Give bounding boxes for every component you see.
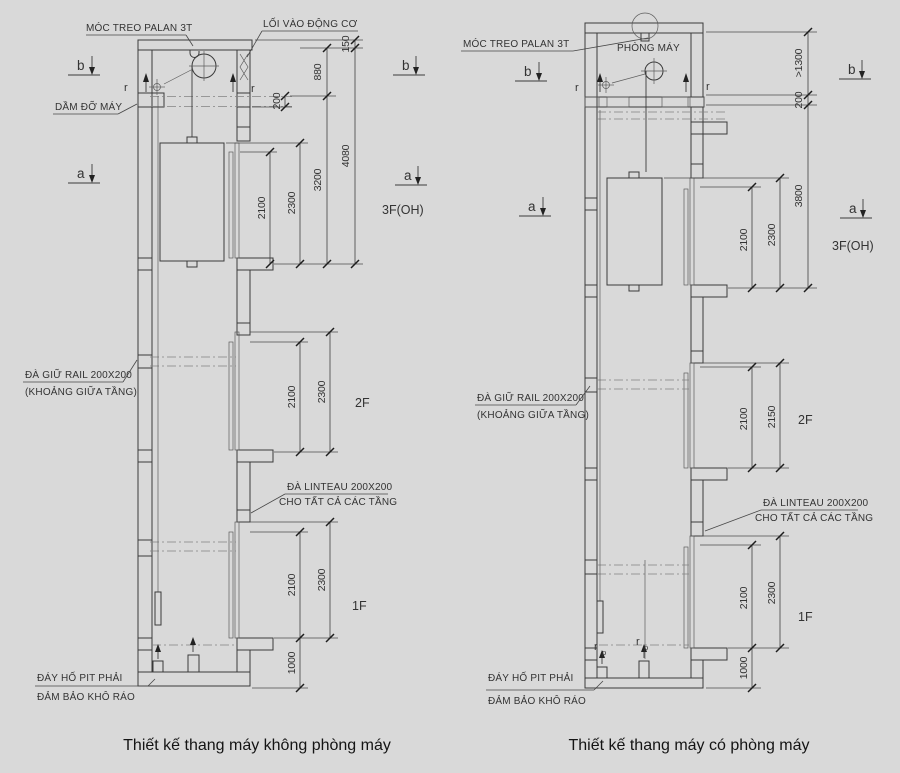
left-wall-right-top	[237, 50, 250, 93]
rail-top-mark-right: r	[251, 83, 255, 95]
right-floor-slab-3f	[691, 285, 727, 297]
motor-access-ladder	[240, 54, 248, 80]
rail-label-1: ĐÀ GIỮ RAIL 200X200	[25, 368, 132, 381]
dim-1f-2100: 2100	[738, 586, 750, 609]
left-cab	[160, 137, 224, 267]
buffer	[597, 667, 607, 678]
left-roof-slab	[138, 40, 252, 50]
rail-label-2: (KHOẢNG GIỮA TẦNG)	[477, 408, 589, 421]
elevator-drawing-svg: r r	[0, 0, 900, 773]
pit-label-2: ĐẢM BẢO KHÔ RÁO	[37, 690, 135, 703]
right-wall-right-top	[691, 33, 703, 97]
guide-rail	[155, 592, 161, 625]
dim-4080: 4080	[340, 144, 352, 167]
hoist-hook-icon	[190, 50, 199, 58]
section-b-right: b	[848, 62, 856, 77]
section-b-right: b	[402, 58, 410, 73]
pit-label-1: ĐÁY HỐ PIT PHẢI	[488, 670, 573, 684]
right-shaft-structure	[585, 13, 727, 688]
section-a-right: a	[404, 168, 412, 183]
dim-1000: 1000	[738, 656, 750, 679]
right-machine-assembly: r r	[575, 58, 710, 172]
right-caption: Thiết kế thang máy có phòng máy	[568, 737, 809, 754]
linteau-label-1: ĐÀ LINTEAU 200X200	[287, 480, 393, 493]
rail-top-mark-right: r	[706, 81, 710, 93]
rail-top-mark-left: r	[124, 82, 128, 94]
linteau-label-2: CHO TẤT CẢ CÁC TẦNG	[755, 511, 873, 524]
left-callouts: MÓC TREO PALAN 3T LỐI VÀO ĐỘNG CƠ DẦM ĐỠ…	[23, 16, 397, 703]
dim-2f-2300: 2300	[316, 380, 328, 403]
buffer-mark-r2: r	[636, 636, 640, 648]
right-pit-equipment: r p r p	[594, 110, 649, 678]
guide-rail	[597, 601, 603, 633]
right-pit-floor	[585, 678, 703, 688]
section-a-left: a	[77, 166, 85, 181]
hoist-hook-icon	[641, 33, 649, 41]
left-section-markers: b a b a	[68, 56, 427, 185]
cab-body	[607, 178, 662, 285]
buffer-mark-p2: p	[644, 643, 648, 652]
section-a-left: a	[528, 199, 536, 214]
section-b-left: b	[524, 64, 532, 79]
dim-2100-oh: 2100	[256, 196, 268, 219]
right-floor-slab-1f	[691, 648, 727, 660]
floor-1f-label: 1F	[798, 610, 813, 624]
dim-1300: >1300	[793, 48, 805, 77]
floor-2f-label: 2F	[798, 413, 813, 427]
pit-label-2: ĐẢM BẢO KHÔ RÁO	[488, 694, 586, 707]
left-wall-left	[138, 50, 152, 672]
floor-1f-label: 1F	[352, 599, 367, 613]
rail-label-1: ĐÀ GIỮ RAIL 200X200	[477, 391, 584, 404]
left-caption: Thiết kế thang máy không phòng máy	[123, 737, 391, 754]
buffer-mark-p1: p	[602, 648, 606, 657]
left-floor-labels: 3F(OH) 2F 1F	[352, 203, 424, 613]
right-cab	[607, 172, 662, 291]
rail-top-mark-left: r	[575, 82, 579, 94]
dim-880: 880	[312, 63, 324, 80]
pit-label-1: ĐÁY HỐ PIT PHẢI	[37, 670, 122, 684]
cab-body	[160, 143, 224, 261]
dim-1f-2100: 2100	[286, 573, 298, 596]
right-drawing: r r r p r p	[461, 13, 874, 754]
dim-200: 200	[793, 91, 805, 108]
rail-label-2: (KHOẢNG GIỮA TẦNG)	[25, 385, 137, 398]
hoist-hook-ring	[632, 13, 658, 39]
linteau-label-2: CHO TẤT CẢ CÁC TẦNG	[279, 495, 397, 508]
left-centerlines	[150, 97, 292, 646]
machine-room-floor	[585, 97, 704, 107]
dim-2300-oh: 2300	[286, 191, 298, 214]
section-b-left: b	[77, 58, 85, 73]
linteau-label-1: ĐÀ LINTEAU 200X200	[763, 496, 869, 509]
hook-label: MÓC TREO PALAN 3T	[463, 37, 569, 50]
left-dimensions: 2100 2300 200 880 3200 150 4080 2100 230…	[226, 35, 363, 692]
left-floor-slab-3f	[237, 258, 273, 270]
floor-3f-label: 3F(OH)	[832, 239, 874, 253]
right-roof-slab	[585, 23, 703, 33]
dim-1f-2300: 2300	[316, 568, 328, 591]
elevator-shaft-drawing-page: r r	[0, 0, 900, 773]
right-callouts: MÓC TREO PALAN 3T PHÒNG MÁY ĐÀ GIỮ RAIL …	[461, 37, 873, 707]
dim-1f-2300: 2300	[766, 581, 778, 604]
dim-200: 200	[271, 92, 283, 109]
right-linteau-block	[691, 522, 703, 536]
left-drawing: r r	[23, 16, 427, 754]
left-floor-slab-1f	[237, 638, 273, 650]
hook-label: MÓC TREO PALAN 3T	[86, 21, 192, 34]
floor-2f-label: 2F	[355, 396, 370, 410]
dim-2f-2100: 2100	[286, 385, 298, 408]
buffer	[188, 655, 199, 672]
right-wall-left	[585, 33, 597, 678]
right-dimensions: 2100 2300 >1300 200 3800 2100 2150 2100 …	[664, 28, 817, 692]
buffer	[153, 661, 163, 672]
left-linteau-block	[237, 510, 250, 522]
dim-3800: 3800	[793, 184, 805, 207]
right-section-markers: b a b a	[515, 60, 872, 218]
motor-access-label: LỐI VÀO ĐỘNG CƠ	[263, 16, 358, 30]
dim-2100-oh: 2100	[738, 228, 750, 251]
buffer	[639, 661, 649, 678]
dim-1000: 1000	[286, 651, 298, 674]
dim-2f-2150: 2150	[766, 405, 778, 428]
right-floor-slab-2f	[691, 468, 727, 480]
left-floor-slab-2f	[237, 450, 273, 462]
dim-2300-oh: 2300	[766, 223, 778, 246]
machine-room-label: PHÒNG MÁY	[617, 41, 680, 54]
buffer-mark-r1: r	[594, 641, 598, 653]
right-floor-labels: 3F(OH) 2F 1F	[798, 239, 874, 624]
dim-150: 150	[340, 35, 352, 52]
machine-beam-label: DẦM ĐỠ MÁY	[55, 100, 122, 113]
dim-3200: 3200	[312, 168, 324, 191]
dim-2f-2100: 2100	[738, 407, 750, 430]
floor-3f-label: 3F(OH)	[382, 203, 424, 217]
section-a-right: a	[849, 201, 857, 216]
